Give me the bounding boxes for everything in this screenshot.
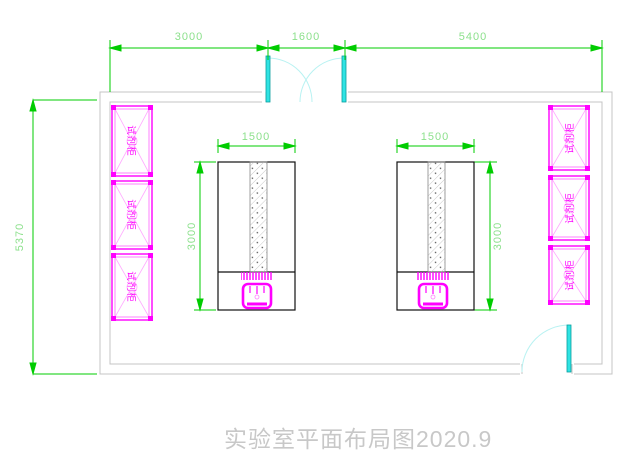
- reagent-cabinet-left-2: [111, 180, 153, 250]
- door-jambs: [266, 92, 572, 374]
- floorplan-linework: [0, 0, 619, 469]
- room-walls: [100, 92, 612, 374]
- door-leaf-left: [266, 56, 270, 102]
- lab-bench-right: [397, 162, 474, 310]
- reagent-cabinet-left-1: [111, 105, 153, 177]
- sink-icon-left: [241, 272, 273, 308]
- bottom-door-opening: [520, 358, 574, 378]
- sink-icon-right: [417, 272, 449, 308]
- door-leaf-right: [342, 56, 346, 102]
- bench-center-channel: [428, 162, 445, 272]
- bench-center-channel: [250, 162, 267, 272]
- reagent-cabinet-right-3: [548, 245, 590, 305]
- floorplan-canvas: 3000 1600 5400 5370 1500 1500 3000 3000 …: [0, 0, 619, 469]
- reagent-cabinet-right-2: [548, 175, 590, 241]
- door-leaf: [567, 325, 571, 372]
- reagent-cabinet-right-1: [548, 105, 590, 171]
- top-door-opening: [262, 88, 348, 106]
- reagent-cabinet-left-3: [111, 253, 153, 321]
